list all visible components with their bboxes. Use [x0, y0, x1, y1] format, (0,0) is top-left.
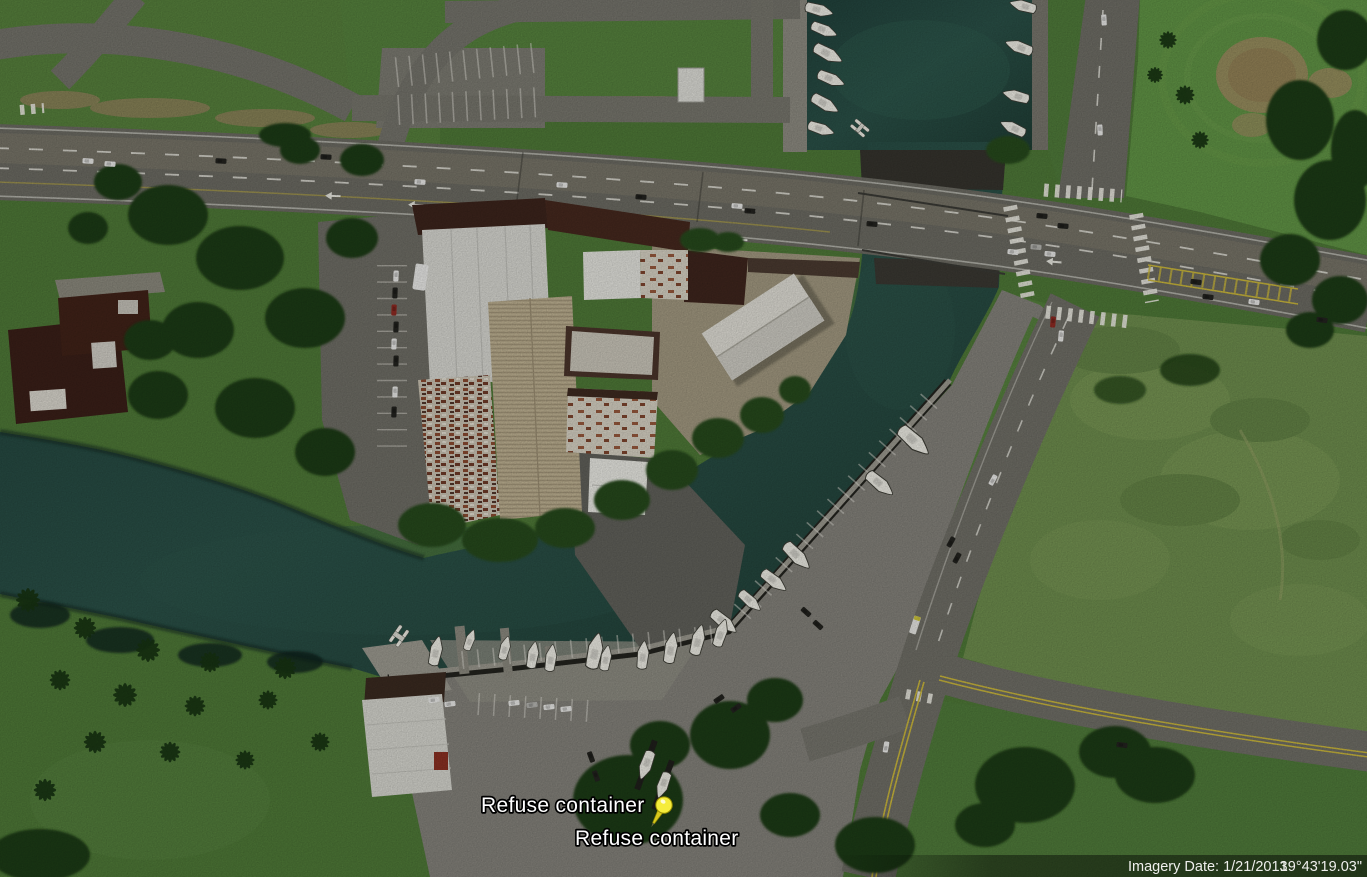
- placemark-label[interactable]: Refuse container: [481, 794, 645, 817]
- placemark-refuse-container-2[interactable]: Refuse container: [575, 827, 739, 850]
- status-bar: Imagery Date: 1/21/2013 19°43'19.03": [830, 855, 1367, 877]
- satellite-view[interactable]: Refuse container Refuse container Imager…: [0, 0, 1367, 877]
- coordinates-text: 19°43'19.03": [1280, 859, 1362, 875]
- placemark-label[interactable]: Refuse container: [575, 827, 739, 850]
- imagery-grain-overlay: [0, 0, 1367, 877]
- imagery-date-text: Imagery Date: 1/21/2013: [1128, 859, 1288, 875]
